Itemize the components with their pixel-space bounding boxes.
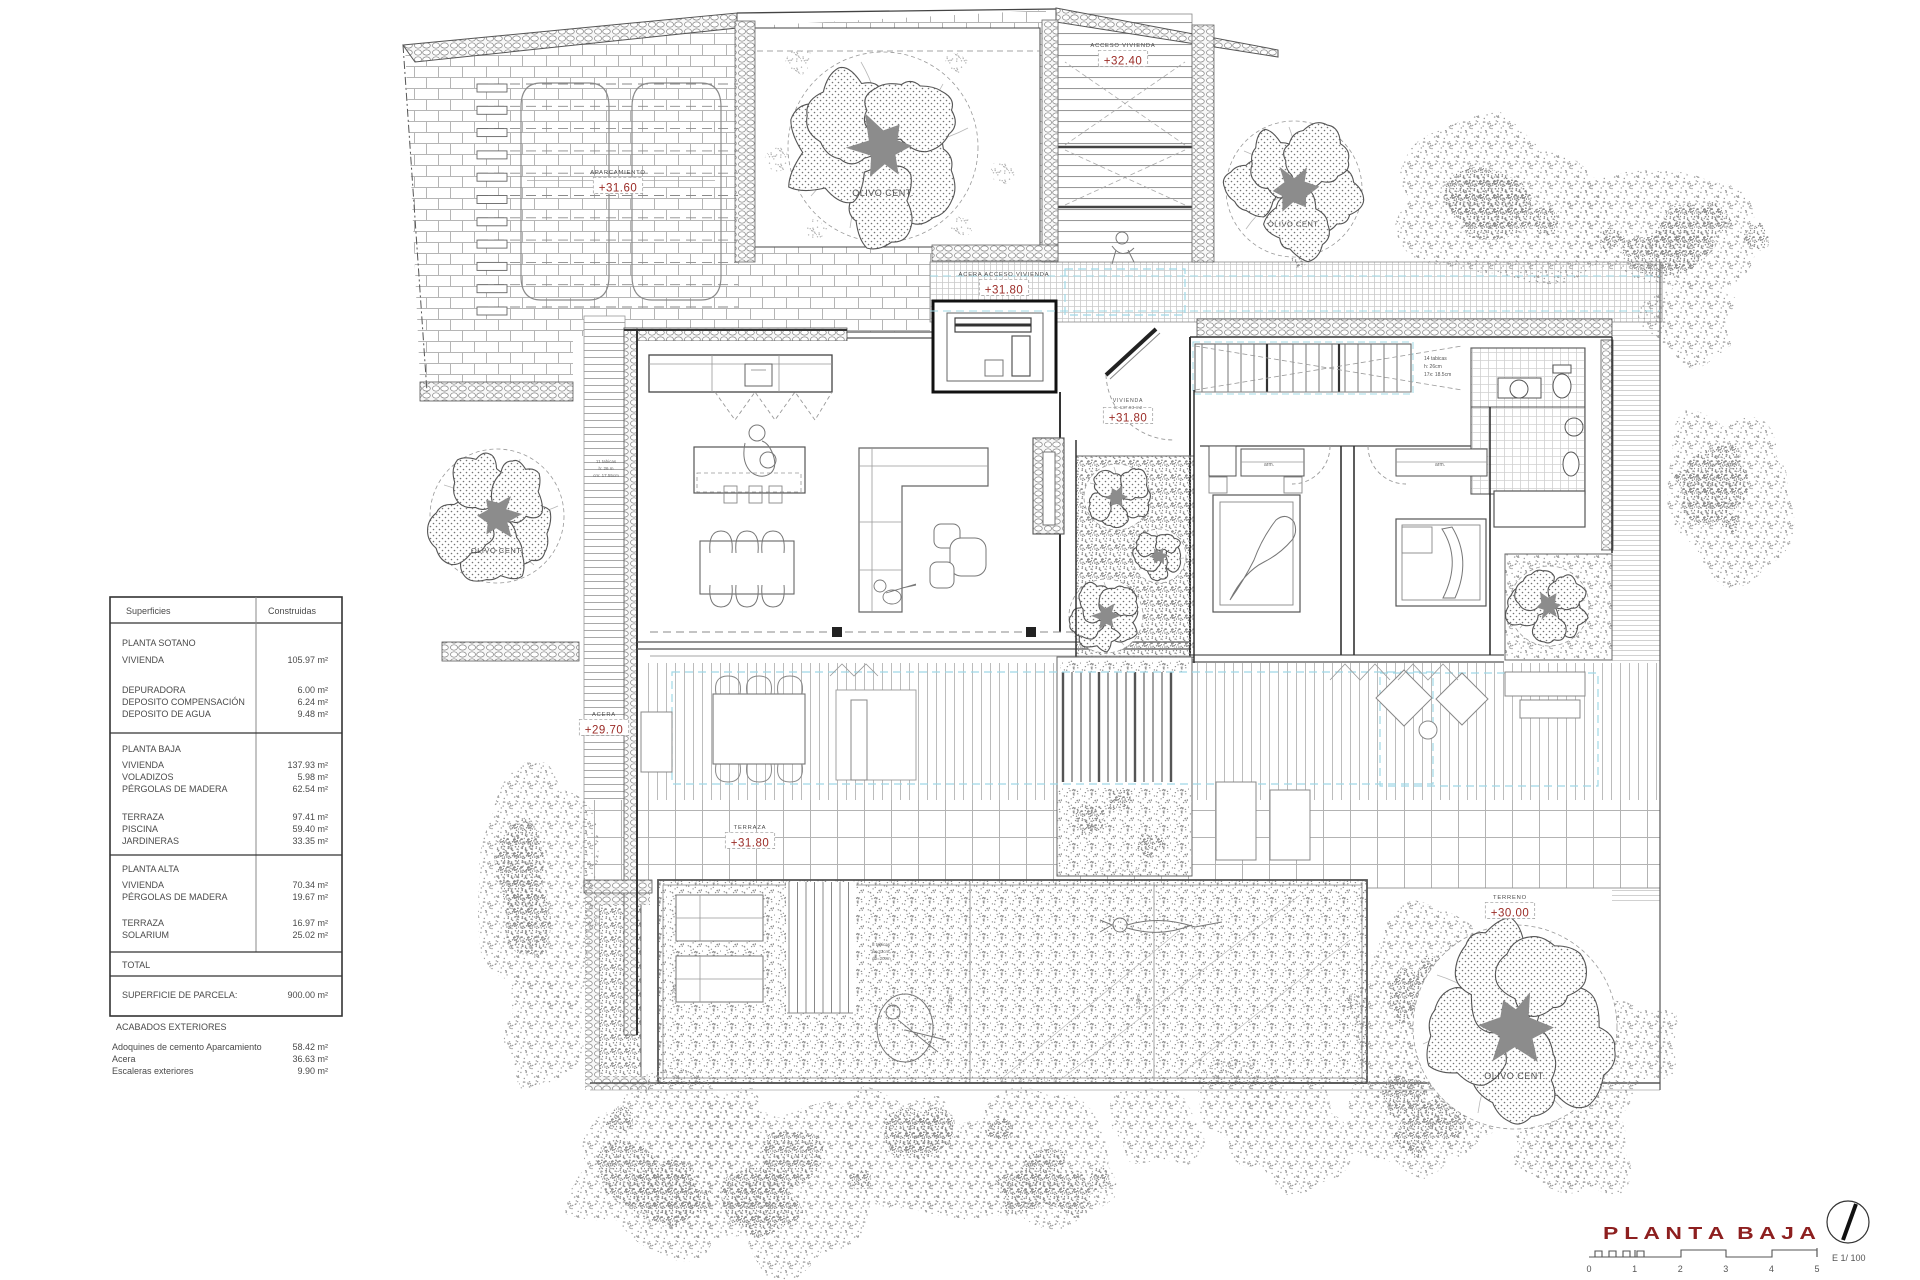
svg-text:14 tabicas: 14 tabicas	[1424, 356, 1447, 362]
svg-text:9.90 m²: 9.90 m²	[297, 1066, 328, 1076]
svg-text:S: 137.93 m2: S: 137.93 m2	[1114, 405, 1143, 411]
svg-text:-1.20m: -1.20m	[672, 984, 678, 1000]
svg-text:PLANTA ALTA: PLANTA ALTA	[122, 864, 179, 874]
svg-text:P L A N T A B A J A: P L A N T A B A J A	[1603, 1223, 1816, 1243]
svg-text:SUPERFICIE DE PARCELA:: SUPERFICIE DE PARCELA:	[122, 990, 237, 1000]
svg-text:5: 5	[1814, 1264, 1819, 1274]
svg-text:70.34 m²: 70.34 m²	[292, 880, 328, 890]
svg-text:900.00 m²: 900.00 m²	[287, 990, 328, 1000]
svg-text:h: 26 m: h: 26 m	[598, 466, 613, 471]
svg-text:dh=20cm: dh=20cm	[872, 956, 891, 961]
svg-text:DEPOSITO DE AGUA: DEPOSITO DE AGUA	[122, 709, 211, 719]
svg-text:-1.20m: -1.20m	[948, 994, 954, 1010]
svg-text:OLIVO CENT.: OLIVO CENT.	[1484, 1071, 1546, 1081]
svg-text:TERRAZA: TERRAZA	[122, 812, 164, 822]
svg-text:PÉRGOLAS DE MADERA: PÉRGOLAS DE MADERA	[122, 892, 228, 902]
svg-text:C A S A L O N: C A S A L O N	[1002, 1078, 1059, 1084]
svg-text:VIVIENDA: VIVIENDA	[1113, 398, 1144, 404]
svg-text:cm: 17.55cm: cm: 17.55cm	[593, 473, 619, 478]
svg-text:6.24 m²: 6.24 m²	[297, 697, 328, 707]
svg-text:59.40 m²: 59.40 m²	[292, 824, 328, 834]
svg-text:Superficies: Superficies	[126, 606, 171, 616]
svg-text:C A S A L O N: C A S A L O N	[1100, 868, 1147, 873]
svg-text:Adoquines de cemento Aparcamie: Adoquines de cemento Aparcamiento	[112, 1042, 262, 1052]
svg-text:+31.80: +31.80	[1109, 412, 1148, 424]
svg-text:OLIVO CENT.: OLIVO CENT.	[852, 188, 914, 198]
svg-text:+32.40: +32.40	[1104, 55, 1143, 67]
svg-text:0: 0	[1586, 1264, 1591, 1274]
svg-text:OLIVO CENT.: OLIVO CENT.	[1268, 220, 1320, 229]
svg-text:VOLADIZOS: VOLADIZOS	[122, 772, 174, 782]
svg-text:DEPURADORA: DEPURADORA	[122, 685, 186, 695]
svg-text:97.41 m²: 97.41 m²	[292, 812, 328, 822]
svg-text:62.54 m²: 62.54 m²	[292, 784, 328, 794]
svg-text:9.48 m²: 9.48 m²	[297, 709, 328, 719]
svg-text:TOTAL: TOTAL	[122, 960, 150, 970]
svg-text:h: 26cm: h: 26cm	[1424, 364, 1442, 370]
svg-text:TERRAZA: TERRAZA	[734, 825, 767, 831]
svg-text:Acera: Acera	[112, 1054, 136, 1064]
svg-text:ACERA: ACERA	[592, 712, 616, 718]
svg-text:ACABADOS EXTERIORES: ACABADOS EXTERIORES	[116, 1022, 227, 1032]
svg-text:3: 3	[1723, 1264, 1728, 1274]
svg-text:36.63 m²: 36.63 m²	[292, 1054, 328, 1064]
svg-text:TERRENO: TERRENO	[1493, 895, 1527, 901]
svg-text:+31.80: +31.80	[985, 284, 1024, 296]
svg-text:+31.60: +31.60	[599, 182, 638, 194]
svg-text:SOLARIUM: SOLARIUM	[122, 930, 169, 940]
svg-text:4: 4	[1769, 1264, 1774, 1274]
svg-text:VIVIENDA: VIVIENDA	[122, 760, 164, 770]
svg-text:Escaleras exteriores: Escaleras exteriores	[112, 1066, 194, 1076]
svg-text:137.93 m²: 137.93 m²	[287, 760, 328, 770]
svg-text:TERRAZA: TERRAZA	[122, 918, 164, 928]
svg-text:25.02 m²: 25.02 m²	[292, 930, 328, 940]
svg-text:-1.50m: -1.50m	[1136, 994, 1142, 1010]
svg-text:17x: 18.5cm: 17x: 18.5cm	[1424, 372, 1451, 378]
svg-text:Construidas: Construidas	[268, 606, 317, 616]
svg-text:VIVIENDA: VIVIENDA	[122, 655, 164, 665]
svg-text:33.35 m²: 33.35 m²	[292, 836, 328, 846]
svg-text:arm.: arm.	[1435, 462, 1445, 468]
svg-text:+31.80: +31.80	[731, 837, 770, 849]
svg-text:+30.00: +30.00	[1491, 907, 1530, 919]
svg-text:JARDINERAS: JARDINERAS	[122, 836, 179, 846]
svg-text:1: 1	[1632, 1264, 1637, 1274]
svg-text:+29.70: +29.70	[585, 724, 624, 736]
svg-text:PLANTA BAJA: PLANTA BAJA	[122, 744, 181, 754]
svg-text:OLIVO CENT.: OLIVO CENT.	[471, 546, 523, 555]
svg-text:PISCINA: PISCINA	[122, 824, 158, 834]
svg-text:19.67 m²: 19.67 m²	[292, 892, 328, 902]
svg-text:arm.: arm.	[1264, 462, 1274, 468]
svg-text:58.42 m²: 58.42 m²	[292, 1042, 328, 1052]
svg-text:2: 2	[1678, 1264, 1683, 1274]
svg-text:6.00 m²: 6.00 m²	[297, 685, 328, 695]
svg-text:11 tabicas: 11 tabicas	[596, 459, 617, 464]
svg-text:16.97 m²: 16.97 m²	[292, 918, 328, 928]
svg-text:8 tabicas: 8 tabicas	[872, 942, 891, 947]
svg-text:APARCAMIENTO: APARCAMIENTO	[590, 170, 645, 176]
svg-text:E 1/ 100: E 1/ 100	[1832, 1253, 1866, 1263]
svg-text:VIVIENDA: VIVIENDA	[122, 880, 164, 890]
svg-text:ACERA ACCESO VIVIENDA: ACERA ACCESO VIVIENDA	[959, 272, 1050, 278]
svg-text:m: 33cm: m: 33cm	[872, 949, 890, 954]
svg-text:DEPOSITO COMPENSACIÓN: DEPOSITO COMPENSACIÓN	[122, 697, 245, 707]
svg-text:105.97 m²: 105.97 m²	[287, 655, 328, 665]
svg-text:PLANTA SOTANO: PLANTA SOTANO	[122, 638, 196, 648]
svg-text:PÉRGOLAS DE MADERA: PÉRGOLAS DE MADERA	[122, 784, 228, 794]
svg-text:ACCESO VIVIENDA: ACCESO VIVIENDA	[1090, 43, 1155, 49]
svg-text:5.98 m²: 5.98 m²	[297, 772, 328, 782]
